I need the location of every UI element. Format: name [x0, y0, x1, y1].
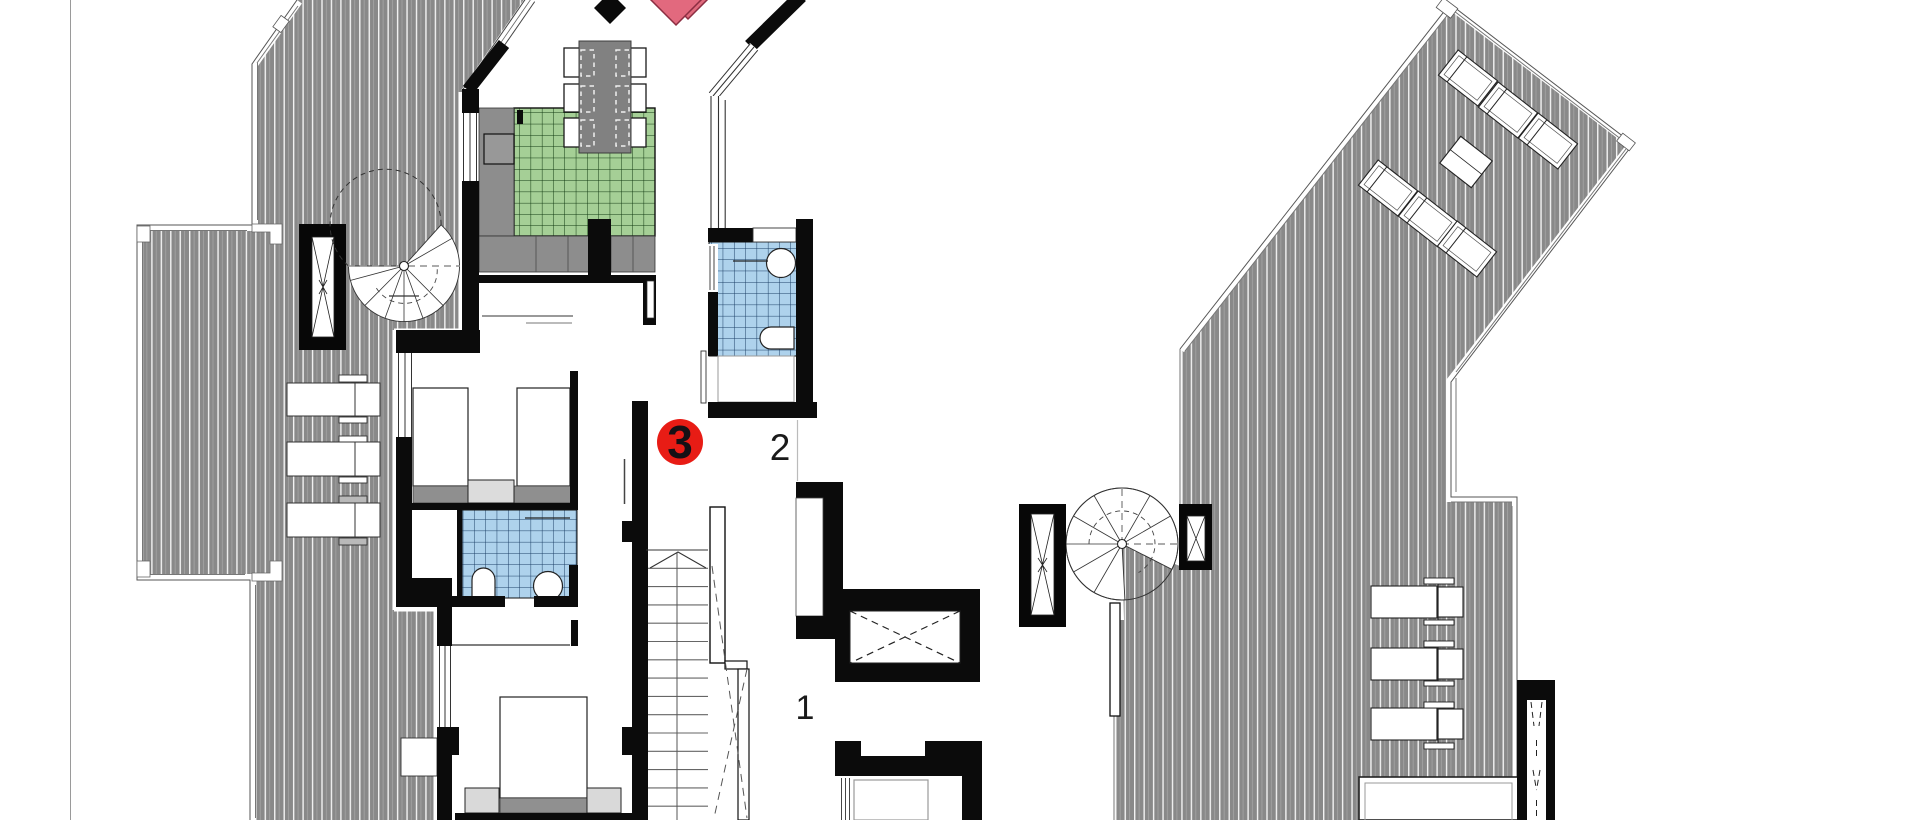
svg-text:1: 1 [796, 689, 815, 727]
svg-text:2: 2 [770, 427, 791, 468]
svg-text:3: 3 [667, 416, 693, 468]
